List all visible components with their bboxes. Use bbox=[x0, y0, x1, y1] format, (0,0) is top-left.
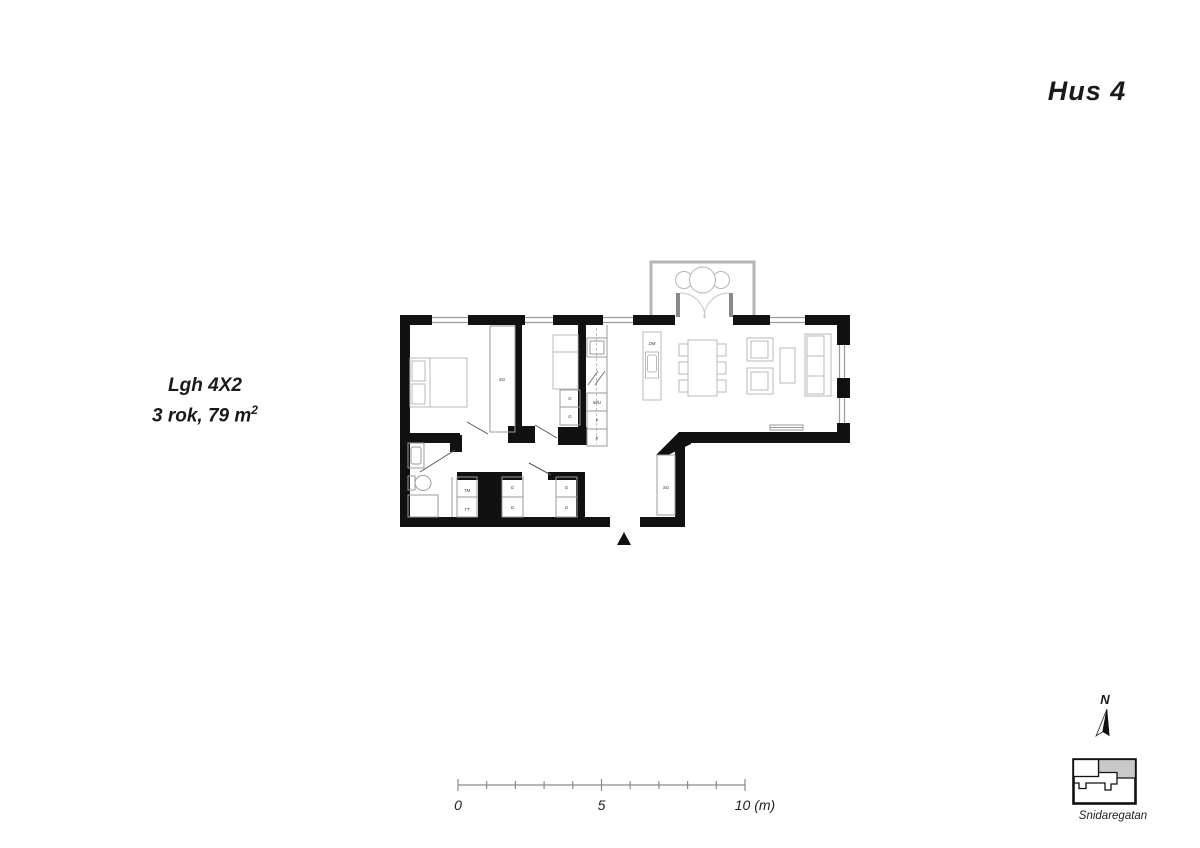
door-leaves bbox=[420, 422, 557, 475]
apartment-label: Lgh 4X2 3 rok, 79 m2 bbox=[100, 374, 310, 428]
single-bed bbox=[553, 335, 578, 389]
balcony bbox=[651, 262, 754, 318]
scale-ten: 10 (m) bbox=[735, 797, 775, 813]
north-arrow: N bbox=[1085, 692, 1125, 748]
double-bed bbox=[410, 358, 467, 407]
key-plan bbox=[1070, 753, 1140, 811]
label-g: G bbox=[565, 505, 569, 510]
label-g: G bbox=[511, 485, 515, 490]
label-sg-hall: SG bbox=[663, 485, 670, 490]
label-g: G bbox=[568, 414, 572, 419]
label-sg-bedroom: SG bbox=[499, 377, 506, 382]
entrance-arrow bbox=[617, 532, 631, 545]
apartment-area-sup: 2 bbox=[251, 403, 258, 417]
label-mu: M/U bbox=[593, 400, 602, 405]
balcony-door-leaf bbox=[729, 293, 733, 317]
balcony-door-leaf bbox=[676, 293, 680, 317]
room2 bbox=[553, 335, 580, 425]
dining-table bbox=[688, 340, 717, 396]
label-g: G bbox=[568, 396, 572, 401]
coffee-table bbox=[780, 348, 795, 383]
label-dm: DM bbox=[649, 341, 656, 346]
label-tt: TT bbox=[464, 507, 470, 512]
scale-five: 5 bbox=[598, 797, 606, 813]
outer-walls bbox=[400, 315, 850, 527]
label-f: F bbox=[596, 418, 599, 423]
scale-bar: 0 5 10 (m) bbox=[445, 768, 775, 818]
scale-zero: 0 bbox=[454, 797, 462, 813]
sofa bbox=[805, 334, 831, 396]
label-tm: TM bbox=[464, 488, 471, 493]
hall-closets bbox=[502, 455, 675, 517]
label-g: G bbox=[511, 505, 515, 510]
apartment-id: Lgh 4X2 bbox=[168, 375, 242, 396]
north-needle bbox=[1085, 707, 1125, 743]
floor-plan-drawing: SG G G M/U F K DM TM TT G G G G SG bbox=[395, 248, 865, 548]
living-area bbox=[747, 334, 831, 430]
apartment-rooms: 3 rok, 79 m bbox=[152, 405, 251, 426]
sheet-title: Hus 4 bbox=[1012, 76, 1162, 107]
scale-bar-line bbox=[458, 779, 745, 791]
shower bbox=[408, 495, 438, 517]
north-label: N bbox=[1085, 692, 1125, 707]
label-g: G bbox=[565, 485, 569, 490]
street-name: Snidaregatan bbox=[1058, 810, 1168, 822]
floor-plan-sheet: Hus 4 Lgh 4X2 3 rok, 79 m2 bbox=[0, 0, 1200, 848]
dining-area bbox=[679, 340, 726, 396]
kitchen bbox=[587, 325, 607, 446]
label-k: K bbox=[596, 436, 600, 441]
